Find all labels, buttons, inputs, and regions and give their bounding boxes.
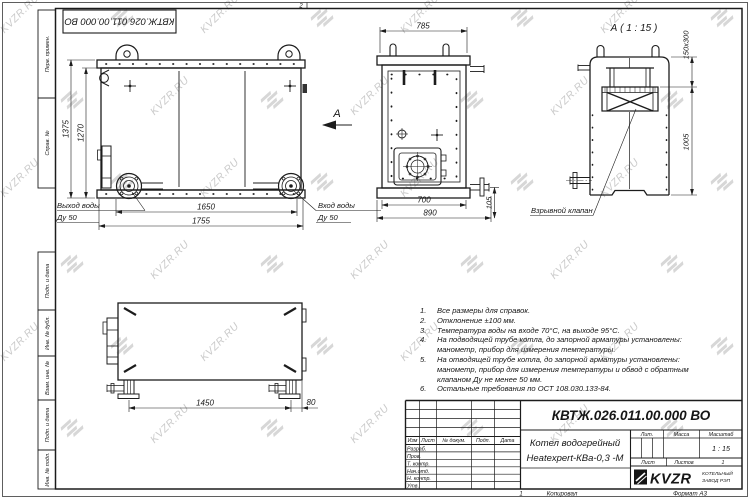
detail-view-a xyxy=(530,46,697,216)
outlet-label-line1: Выход воды xyxy=(57,201,100,210)
note-number: 1. xyxy=(420,306,437,316)
sheet-frame-labels: 2 1 Копировал Формат А3 КВТЖ.026.011.00.… xyxy=(45,4,707,498)
stamp-label-sprav-no: Справ. № xyxy=(45,130,51,155)
zone-bottom-label: 1 xyxy=(519,492,522,498)
dim-overall-height: 1375 xyxy=(62,120,71,138)
dim-flange-span: 1650 xyxy=(197,203,215,212)
kvzr-logo-text: KVZR xyxy=(650,472,692,488)
drawing-canvas: 2 1 Копировал Формат А3 КВТЖ.026.011.00.… xyxy=(0,0,750,500)
detail-pipe-flange xyxy=(566,173,592,189)
stamp-label-vzam-inv: Взам. инв. № xyxy=(45,361,51,395)
note-number: 5. xyxy=(420,355,437,384)
dim-chimney-height: 1005 xyxy=(682,133,691,151)
datum-cross-marks xyxy=(124,80,296,92)
view-direction-letter: А xyxy=(332,108,340,120)
notes-block: 1.Все размеры для справок.2.Отклонение ±… xyxy=(420,306,722,394)
note-text: Температура воды на входе 70°С, на выход… xyxy=(437,326,722,336)
sheets-label: Листов xyxy=(673,460,694,466)
front-dim-lines xyxy=(67,60,303,230)
sheets-value: 1 xyxy=(722,460,725,466)
row-nkontr: Н. контр. xyxy=(407,476,431,482)
company-line1: КОТЕЛЬНЫЙ xyxy=(702,469,733,477)
dim-side-overall-width: 785 xyxy=(416,22,430,31)
scale-label: Масштаб xyxy=(709,432,735,438)
outlet-label-line2: Ду 50 xyxy=(56,213,78,222)
lit-label: Лит. xyxy=(640,432,653,438)
note-item: 2.Отклонение ±100 мм. xyxy=(420,316,722,326)
corner-weld-ticks xyxy=(124,308,296,372)
note-text: Все размеры для справок. xyxy=(437,306,722,316)
explosion-valve-box xyxy=(602,87,658,111)
side-datum-cross xyxy=(431,129,443,141)
water-outlet-flange xyxy=(117,174,164,199)
copy-label: Копировал xyxy=(547,491,578,498)
col-header-podp: Подп. xyxy=(476,438,490,444)
row-prov: Пров. xyxy=(407,454,421,460)
inlet-label-line1: Вход воды xyxy=(318,201,355,210)
stamp-label-podp-data-2: Подп. и дата xyxy=(45,408,51,442)
note-number: 2. xyxy=(420,316,437,326)
title-block-texts: КВТЖ.026.011.00.000 ВО Котел водогрейный… xyxy=(407,408,734,490)
note-number: 6. xyxy=(420,384,437,394)
row-razrab: Разраб. xyxy=(407,447,426,453)
dim-chimney-section: 150х300 xyxy=(682,30,691,60)
company-line2: ЗАВОД РЭП xyxy=(702,478,731,484)
side-pipe-flange xyxy=(470,178,489,196)
col-header-docnum: № докум. xyxy=(442,438,465,444)
note-item: 5.На отводящей трубе котла, до запорной … xyxy=(420,355,722,384)
dim-side-pipe-offset: 105 xyxy=(485,196,494,209)
col-header-izm: Изм xyxy=(408,438,418,444)
water-inlet-flange xyxy=(253,174,304,199)
dim-support-span: 1450 xyxy=(196,399,214,408)
format-label: Формат А3 xyxy=(673,491,707,498)
doc-number-top-inverted: КВТЖ.026.011.00.000 ВО xyxy=(64,16,175,27)
product-name-line1: Котел водогрейный xyxy=(530,438,621,449)
note-number: 3. xyxy=(420,326,437,336)
dim-side-width-with-pipe: 890 xyxy=(423,209,437,218)
valve-leader-line xyxy=(530,109,636,216)
note-item: 6.Остальные требования по ОСТ 108.030.13… xyxy=(420,384,722,394)
stamp-label-inv-podl: Инв. № подл. xyxy=(45,452,51,486)
stamp-label-inv-dubl: Инв. № дубл. xyxy=(45,316,51,350)
side-view xyxy=(377,27,499,222)
col-header-list: Лист xyxy=(420,438,435,444)
row-utv: Утв. xyxy=(407,484,419,490)
bottom-view-texts: 1450 80 xyxy=(196,398,316,408)
row-tkontr: Т. контр. xyxy=(407,461,430,467)
scale-value: 1 : 15 xyxy=(712,444,731,453)
col-header-data: Дата xyxy=(500,438,515,444)
explosion-valve-label: Взрывной клапан xyxy=(531,206,594,215)
detail-view-title: А ( 1 : 15 ) xyxy=(610,23,658,34)
kvzr-logo-icon xyxy=(634,470,647,485)
note-text: Остальные требования по ОСТ 108.030.133-… xyxy=(437,384,722,394)
detail-view-texts: А ( 1 : 15 ) 150х300 1005 Взрывной клапа… xyxy=(531,23,691,215)
dim-overall-width: 1755 xyxy=(192,217,210,226)
stamp-label-perv-primen: Перв. примен. xyxy=(45,36,51,73)
support-legs xyxy=(107,380,300,399)
mass-label: Масса xyxy=(674,432,690,438)
dim-side-body-width: 700 xyxy=(417,196,431,205)
note-item: 1.Все размеры для справок. xyxy=(420,306,722,316)
stamp-label-podp-data-1: Подп. и дата xyxy=(45,264,51,298)
dim-body-height: 1270 xyxy=(77,124,86,142)
zone-top-label: 2 xyxy=(298,4,303,10)
note-item: 3.Температура воды на входе 70°С, на вых… xyxy=(420,326,722,336)
inlet-label-line2: Ду 50 xyxy=(317,213,339,222)
row-nachotd: Нач.отд. xyxy=(407,469,429,475)
drawing-sheet: KVZR.RUKVZR.RUKVZR.RUKVZR.RUKVZR.RUKVZR.… xyxy=(0,0,750,500)
sheet-label: Лист xyxy=(640,460,655,466)
note-text: На отводящей трубе котла, до запорной ар… xyxy=(437,355,722,384)
note-item: 4.На подводящей трубе котла, до запорной… xyxy=(420,335,722,355)
detail-dim-lines xyxy=(660,57,697,195)
dim-edge-offset: 80 xyxy=(307,398,316,407)
note-text: Отклонение ±100 мм. xyxy=(437,316,722,326)
note-text: На подводящей трубе котла, до запорной а… xyxy=(437,335,722,355)
bottom-view xyxy=(103,303,318,412)
doc-number: КВТЖ.026.011.00.000 ВО xyxy=(552,408,711,423)
product-name-line2: Heatexpert-КВа-0,3 -М xyxy=(527,453,624,464)
burner-door xyxy=(394,148,446,185)
note-number: 4. xyxy=(420,335,437,355)
